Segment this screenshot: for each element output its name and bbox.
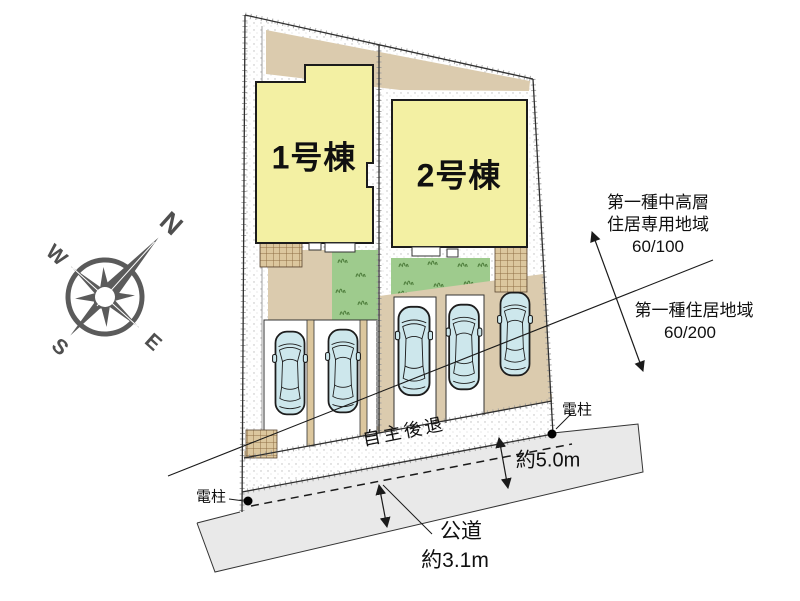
site-plan-screenshot: N E S W 1号棟 2号棟 第一種中高層 住居専用地域 60/100 第一種…	[0, 0, 800, 601]
utility-pole-right-dot	[548, 430, 557, 439]
utility-pole-left-label: 電柱	[196, 488, 226, 505]
road-label: 公道	[440, 520, 482, 544]
porch	[309, 243, 321, 250]
road-width-front-label: 約3.1m	[421, 549, 489, 573]
car-4	[446, 305, 482, 390]
compass-e: E	[140, 329, 166, 355]
zoning-upper-ratio: 60/100	[632, 237, 684, 257]
road-width-side-label: 約5.0m	[516, 450, 580, 473]
zoning-upper-line2: 住居専用地域	[607, 215, 709, 235]
car-2	[326, 330, 361, 413]
building-1-label: 1号棟	[272, 140, 357, 177]
compass-rose: N E S W	[0, 163, 236, 405]
compass-w: W	[41, 240, 71, 270]
compass-n: N	[154, 206, 189, 241]
car-3	[395, 307, 432, 395]
porch	[447, 249, 458, 257]
stall-divider	[360, 320, 367, 436]
zoning-lower-ratio: 60/200	[664, 323, 716, 343]
utility-pole-left-dot	[244, 497, 253, 506]
porch	[412, 247, 440, 256]
zoning-upper-line1: 第一種中高層	[607, 193, 709, 213]
compass-s: S	[47, 334, 73, 360]
stall-divider	[307, 320, 314, 446]
porch	[325, 243, 355, 252]
utility-pole-right-label: 電柱	[562, 401, 592, 418]
zoning-lower-line1: 第一種住居地域	[635, 301, 754, 321]
building-2-label: 2号棟	[417, 158, 502, 195]
car-1	[273, 332, 308, 415]
